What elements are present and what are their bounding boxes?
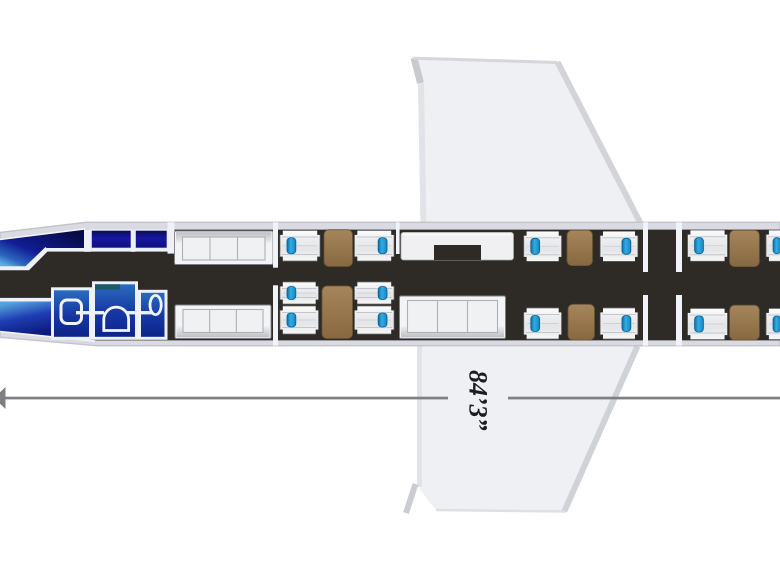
svg-text:84’3”: 84’3” bbox=[464, 370, 493, 431]
